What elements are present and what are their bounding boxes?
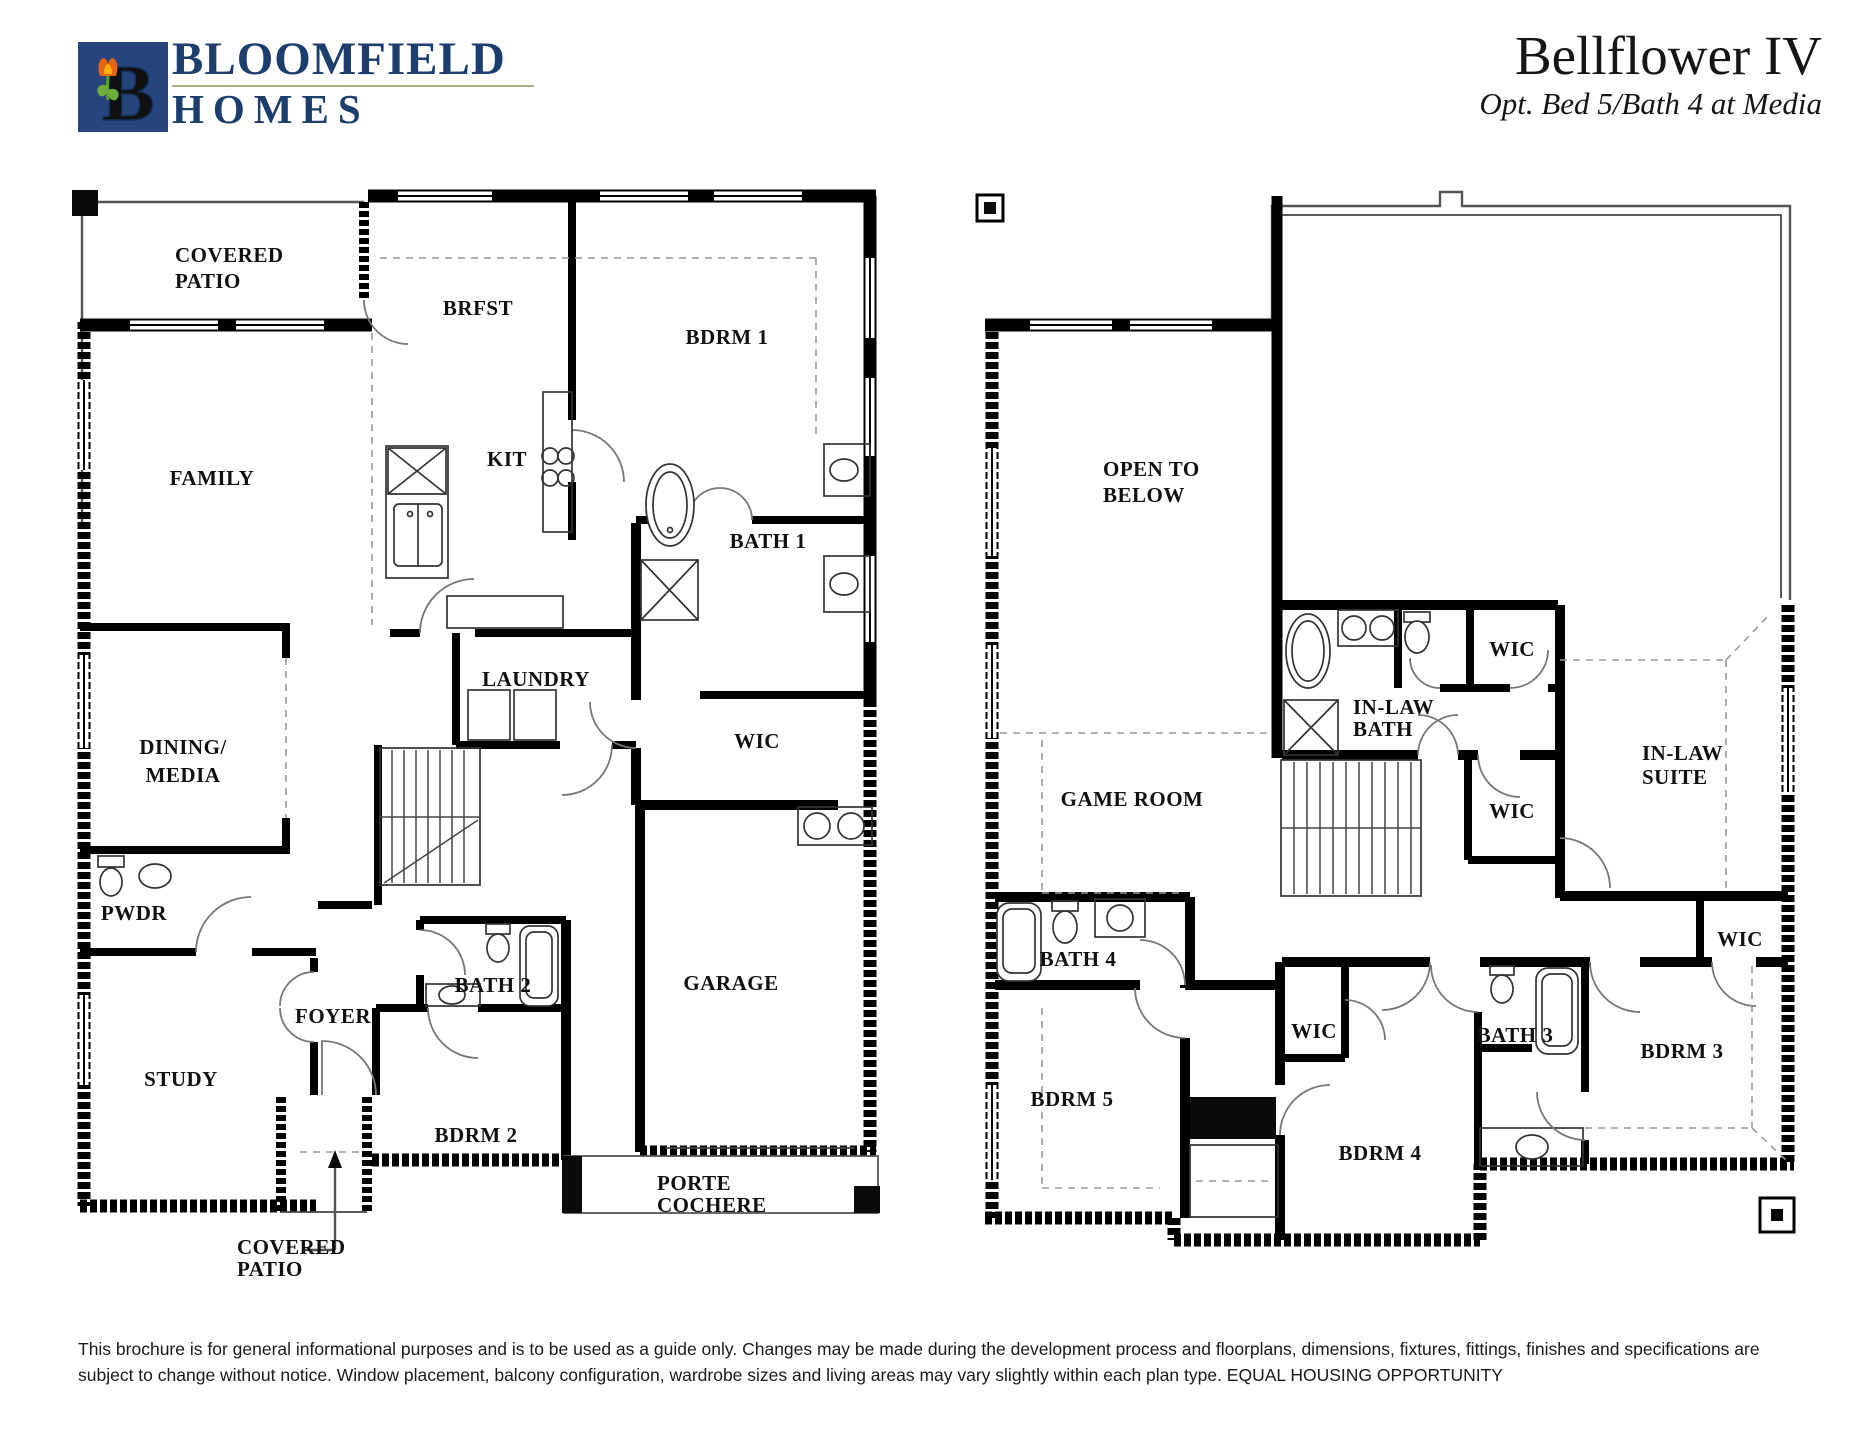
label-bath1: BATH 1: [730, 529, 807, 553]
brochure-page: B BLOOMFIELD HOMES Bellflower IV Opt. Be…: [0, 0, 1864, 1440]
brand-name: BLOOMFIELD HOMES: [172, 36, 534, 130]
label-porte-cochere: PORTE: [657, 1171, 731, 1195]
room-labels: COVERED PATIO FAMILY BRFST KIT BDRM 1 BA…: [101, 243, 806, 1281]
label-laundry: LAUNDRY: [482, 667, 590, 691]
label-wic-bdrm4: WIC: [1291, 1019, 1337, 1043]
label-bath4: BATH 4: [1040, 947, 1117, 971]
bloomfield-logo: B: [78, 42, 168, 139]
page-subtitle: Opt. Bed 5/Bath 4 at Media: [1479, 86, 1822, 122]
second-floor-plan: OPEN TO BELOW GAME ROOM IN-LAW BATH WIC …: [975, 160, 1820, 1290]
label-foyer: FOYER: [295, 1004, 371, 1028]
stairs: [380, 748, 480, 885]
label-study: STUDY: [144, 1067, 218, 1091]
svg-text:PATIO: PATIO: [237, 1257, 303, 1281]
svg-text:PATIO: PATIO: [175, 269, 241, 293]
label-garage: GARAGE: [683, 971, 778, 995]
room-labels: OPEN TO BELOW GAME ROOM IN-LAW BATH WIC …: [1031, 457, 1763, 1165]
plan-marker-top-left: [977, 195, 1003, 221]
disclaimer-line2: subject to change without notice. Window…: [78, 1362, 1802, 1388]
water-heaters: [798, 807, 872, 845]
label-covered-patio-top: COVERED: [175, 243, 284, 267]
label-bdrm5: BDRM 5: [1031, 1087, 1114, 1111]
brand-line1: BLOOMFIELD: [172, 36, 534, 83]
label-pwdr: PWDR: [101, 901, 167, 925]
label-kit: KIT: [487, 447, 527, 471]
first-floor-plan: COVERED PATIO FAMILY BRFST KIT BDRM 1 BA…: [70, 160, 900, 1290]
label-wic-top: WIC: [1489, 637, 1535, 661]
label-bath3: BATH 3: [1477, 1023, 1554, 1047]
disclaimer-line1: This brochure is for general information…: [78, 1336, 1802, 1362]
brand-line2: HOMES: [172, 89, 534, 130]
label-family: FAMILY: [170, 466, 255, 490]
disclaimer: This brochure is for general information…: [78, 1336, 1802, 1389]
svg-text:BELOW: BELOW: [1103, 483, 1185, 507]
label-wic-right: WIC: [1717, 927, 1763, 951]
label-covered-patio-bottom: COVERED: [237, 1235, 346, 1259]
page-title: Bellflower IV: [1479, 28, 1822, 84]
label-bdrm1: BDRM 1: [686, 325, 769, 349]
plan-titleblock: Bellflower IV Opt. Bed 5/Bath 4 at Media: [1479, 28, 1822, 122]
plan-marker-bottom-right: [1760, 1198, 1794, 1232]
label-inlaw-suite: IN-LAW: [1642, 741, 1723, 765]
label-brfst: BRFST: [443, 296, 513, 320]
stairs: [1281, 760, 1421, 896]
closet-under-stairs: [1190, 1145, 1278, 1217]
label-wic-1f: WIC: [734, 729, 780, 753]
label-open-to-below: OPEN TO: [1103, 457, 1200, 481]
kitchen-island: [386, 446, 448, 578]
label-bdrm4: BDRM 4: [1339, 1141, 1422, 1165]
label-bath2: BATH 2: [455, 973, 532, 997]
roof-outline: [1272, 192, 1790, 600]
label-bdrm2: BDRM 2: [435, 1123, 518, 1147]
label-game-room: GAME ROOM: [1061, 787, 1204, 811]
logo-graphic: B: [78, 42, 168, 134]
svg-text:BATH: BATH: [1353, 717, 1413, 741]
powder-fixtures: [98, 856, 171, 896]
label-inlaw-bath: IN-LAW: [1353, 695, 1434, 719]
label-wic-mid: WIC: [1489, 799, 1535, 823]
svg-text:MEDIA: MEDIA: [146, 763, 221, 787]
svg-text:SUITE: SUITE: [1642, 765, 1708, 789]
label-dining-media: DINING/: [139, 735, 227, 759]
label-bdrm3: BDRM 3: [1641, 1039, 1724, 1063]
svg-text:COCHERE: COCHERE: [657, 1193, 767, 1217]
